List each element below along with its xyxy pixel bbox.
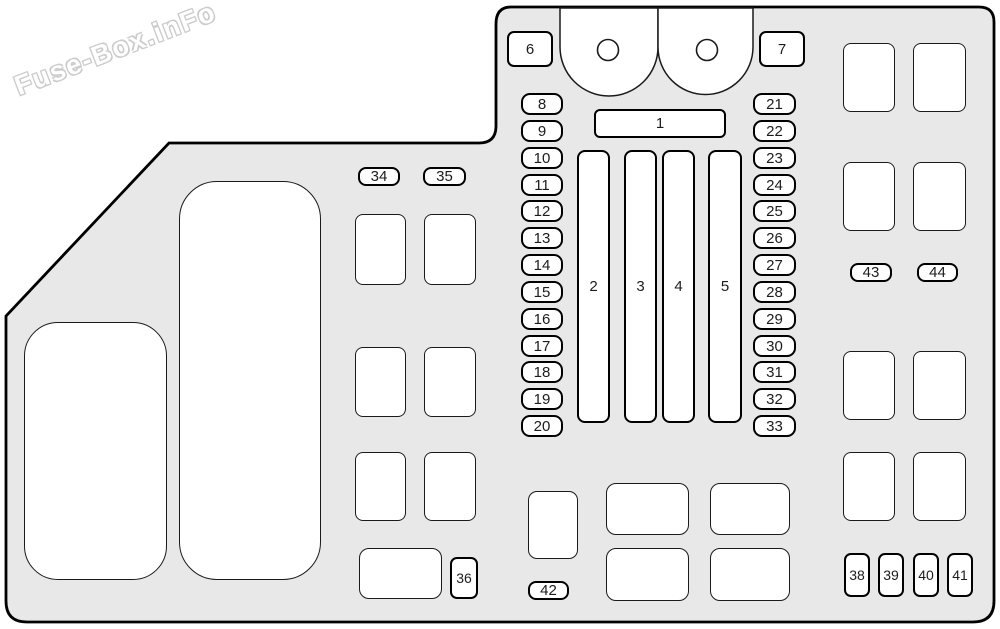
fuse-44: 44 — [917, 263, 958, 282]
relay-block — [424, 452, 476, 521]
relay-block — [843, 351, 895, 420]
fuse-5: 5 — [708, 150, 742, 423]
fuse-label: 43 — [863, 265, 880, 280]
relay-block — [710, 483, 790, 535]
relay-block — [913, 43, 966, 112]
fuse-label: 11 — [534, 178, 550, 193]
fuse-label: 44 — [929, 265, 946, 280]
fuse-15: 15 — [521, 281, 563, 303]
fuse-25: 25 — [753, 200, 796, 222]
relay-block — [355, 452, 406, 521]
fuse-label: 10 — [534, 151, 551, 166]
fuse-27: 27 — [753, 254, 796, 276]
fuse-7: 7 — [759, 31, 805, 67]
fuse-label: 2 — [589, 279, 597, 294]
fuse-21: 21 — [753, 93, 796, 115]
fuse-label: 9 — [538, 124, 546, 139]
cover-tall — [179, 181, 321, 580]
fuse-label: 7 — [778, 42, 786, 57]
fuse-label: 41 — [952, 568, 968, 582]
fuse-39: 39 — [878, 553, 904, 597]
fuse-12: 12 — [521, 200, 563, 222]
fuse-18: 18 — [521, 361, 563, 383]
fuse-box-diagram: Fuse-Box.inFo 67123458910111213141516171… — [0, 0, 1000, 629]
fuse-label: 38 — [849, 568, 865, 582]
fuse-label: 6 — [526, 42, 534, 57]
fuse-label: 21 — [766, 97, 783, 112]
fuse-label: 18 — [534, 365, 551, 380]
fuse-30: 30 — [753, 335, 796, 357]
fuse-label: 14 — [534, 258, 551, 273]
fuse-label: 33 — [766, 419, 783, 434]
fuse-4: 4 — [662, 150, 695, 423]
relay-block — [424, 214, 476, 285]
fuse-label: 16 — [534, 312, 551, 327]
fuse-43: 43 — [850, 263, 892, 282]
cover-left — [24, 322, 167, 580]
fuse-28: 28 — [753, 281, 796, 303]
fuse-32: 32 — [753, 388, 796, 410]
relay-block — [913, 351, 966, 420]
fuse-22: 22 — [753, 120, 796, 142]
fuse-label: 27 — [766, 258, 783, 273]
fuse-19: 19 — [521, 388, 563, 410]
fuse-42: 42 — [528, 581, 569, 600]
fuse-33: 33 — [753, 415, 796, 437]
fuse-label: 31 — [766, 365, 783, 380]
fuse-label: 34 — [371, 169, 388, 184]
fuse-24: 24 — [753, 174, 796, 196]
fuse-29: 29 — [753, 308, 796, 330]
fuse-label: 24 — [766, 178, 783, 193]
fuse-14: 14 — [521, 254, 563, 276]
fuse-label: 17 — [534, 339, 551, 354]
fuse-11: 11 — [521, 174, 563, 196]
fuse-16: 16 — [521, 308, 563, 330]
fuse-label: 8 — [538, 97, 546, 112]
relay-block — [843, 43, 895, 112]
fuse-8: 8 — [521, 93, 563, 115]
fuse-1: 1 — [594, 109, 726, 138]
fuse-label: 15 — [534, 285, 551, 300]
relay-block — [359, 548, 442, 599]
fuse-20: 20 — [521, 415, 563, 437]
fuse-3: 3 — [624, 150, 657, 423]
fuse-38: 38 — [844, 553, 870, 597]
relay-block — [424, 347, 476, 417]
fuse-26: 26 — [753, 227, 796, 249]
fuse-label: 23 — [766, 151, 783, 166]
fuse-10: 10 — [521, 147, 563, 169]
fuse-17: 17 — [521, 335, 563, 357]
fuse-label: 29 — [766, 312, 783, 327]
fuse-label: 39 — [883, 568, 899, 582]
fuse-label: 36 — [456, 571, 472, 585]
relay-block — [913, 162, 966, 231]
fuse-40: 40 — [913, 553, 939, 597]
relay-block — [843, 162, 895, 231]
fuse-31: 31 — [753, 361, 796, 383]
fuse-2: 2 — [577, 150, 610, 423]
fuse-label: 1 — [656, 116, 664, 131]
fuse-label: 5 — [721, 279, 729, 294]
fuse-label: 25 — [766, 204, 783, 219]
fuse-label: 26 — [766, 231, 783, 246]
relay-block — [606, 548, 689, 601]
fuse-and-relay-layer: 6712345891011121314151617181920212223242… — [0, 0, 1000, 629]
fuse-label: 40 — [918, 568, 934, 582]
relay-block — [913, 452, 966, 521]
fuse-9: 9 — [521, 120, 563, 142]
fuse-41: 41 — [947, 553, 973, 597]
fuse-label: 12 — [534, 204, 551, 219]
fuse-23: 23 — [753, 147, 796, 169]
relay-block — [843, 452, 895, 521]
fuse-label: 4 — [674, 279, 682, 294]
fuse-label: 22 — [766, 124, 783, 139]
fuse-label: 42 — [540, 583, 557, 598]
relay-block — [355, 214, 406, 285]
relay-block — [710, 548, 790, 601]
fuse-36: 36 — [450, 557, 478, 599]
fuse-6: 6 — [507, 31, 553, 67]
relay-block — [528, 491, 578, 559]
relay-block — [606, 483, 689, 535]
fuse-label: 28 — [766, 285, 783, 300]
fuse-label: 32 — [766, 392, 783, 407]
fuse-label: 19 — [534, 392, 551, 407]
relay-block — [355, 347, 406, 417]
fuse-13: 13 — [521, 227, 563, 249]
fuse-label: 20 — [534, 419, 551, 434]
fuse-34: 34 — [358, 167, 400, 186]
fuse-label: 13 — [534, 231, 551, 246]
fuse-label: 35 — [436, 169, 453, 184]
fuse-label: 30 — [766, 339, 783, 354]
fuse-35: 35 — [423, 167, 466, 186]
fuse-label: 3 — [636, 279, 644, 294]
